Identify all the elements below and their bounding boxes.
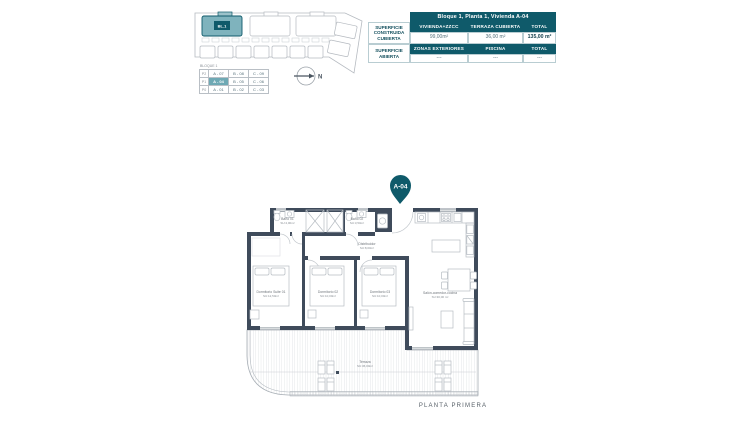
kitchen-counter (415, 212, 474, 257)
floor-plan-drawing: Baño 01 SU:4,00m² Baño 02 SU:3,50m² Dist… (240, 170, 500, 420)
terrace-edge-hatch (290, 392, 478, 397)
value-total-1: 135,00 m² (523, 32, 556, 44)
fridge-icon (467, 225, 474, 234)
building-block-3 (296, 12, 336, 36)
legend-unit: C - 06 (249, 78, 269, 86)
terrace-drain (336, 371, 339, 374)
svg-text:SU:8,00m²: SU:8,00m² (360, 246, 374, 250)
value-piscina: --- (468, 54, 523, 63)
legend-unit: C - 03 (249, 86, 269, 94)
kitchen-sink-icon (419, 215, 424, 220)
living-furniture (409, 269, 477, 345)
svg-text:SU:10,00m²: SU:10,00m² (320, 294, 336, 298)
legend-unit: A - 07 (209, 70, 229, 78)
value-zonas-exteriores: --- (410, 54, 468, 63)
svg-text:SU:30,00 m²: SU:30,00 m² (432, 295, 449, 299)
parking-row (202, 38, 329, 42)
wardrobes (306, 210, 343, 232)
bedroom-furniture (250, 238, 396, 319)
row-houses (200, 46, 323, 58)
sofa (464, 301, 474, 342)
dining-table (448, 269, 470, 291)
north-letter: N (318, 75, 322, 81)
floors-legend: BLOQUE 1 P2 A - 07 B - 08 C - 09 P1 A - … (199, 64, 269, 94)
legend-unit: C - 09 (249, 70, 269, 78)
value-terraza: 36,00 m² (468, 32, 523, 44)
kitchen-island (432, 240, 460, 252)
col-header-vivienda: VIVIENDA+ZZCC (410, 22, 468, 32)
svg-text:SU:3,50m²: SU:3,50m² (350, 221, 364, 225)
svg-text:SU:12,50m²: SU:12,50m² (263, 294, 279, 298)
pin-label: A-04 (393, 184, 407, 191)
legend-floor: P0 (200, 86, 209, 94)
tv-unit (409, 307, 413, 330)
svg-text:SU:4,00m²: SU:4,00m² (280, 221, 294, 225)
building-block-2 (250, 12, 290, 36)
value-total-2: --- (523, 54, 556, 63)
legend-grid: P2 A - 07 B - 08 C - 09 P1 A - 04 B - 05… (199, 69, 269, 94)
svg-text:SU:10,00m²: SU:10,00m² (372, 294, 388, 298)
legend-unit: B - 08 (229, 70, 249, 78)
building-block-1-highlight: BL.1 (202, 12, 242, 36)
col-header-zonas-exteriores: ZONAS EXTERIORES (410, 44, 468, 54)
table-corner-spacer (368, 12, 410, 22)
row-label-superficie-construida: SUPERFICIE CONSTRUIDA CUBIERTA (368, 22, 410, 44)
north-arrow-icon (309, 74, 314, 79)
laundry-shaft (378, 214, 388, 228)
legend-unit: A - 01 (209, 86, 229, 94)
row-label-superficie-abierta: SUPERFICIE ABIERTA (368, 44, 410, 63)
north-compass: N (294, 67, 322, 85)
door-swings (280, 212, 413, 272)
legend-unit: B - 05 (229, 78, 249, 86)
unit-pin: A-04 (390, 175, 411, 204)
plan-caption: PLANTA PRIMERA (398, 403, 508, 409)
legend-unit-selected: A - 04 (209, 78, 229, 86)
table-title: Bloque 1, Planta 1, Vivienda A-04 (410, 12, 556, 22)
coffee-table (441, 311, 453, 328)
col-header-total-1: TOTAL (523, 22, 556, 32)
suite-dressing (252, 238, 280, 256)
col-header-total-2: TOTAL (523, 44, 556, 54)
legend-floor: P2 (200, 70, 209, 78)
surfaces-table: Bloque 1, Planta 1, Vivienda A-04 SUPERF… (368, 12, 556, 63)
block-label: BL.1 (218, 24, 227, 29)
legend-floor: P1 (200, 78, 209, 86)
value-vivienda: 99,00m² (410, 32, 468, 44)
col-header-terraza: TERRAZA CUBIERTA (468, 22, 523, 32)
col-header-piscina: PISCINA (468, 44, 523, 54)
legend-unit: B - 02 (229, 86, 249, 94)
svg-text:SU:36,00m²: SU:36,00m² (357, 364, 373, 368)
legend-title: BLOQUE 1 (199, 64, 269, 68)
